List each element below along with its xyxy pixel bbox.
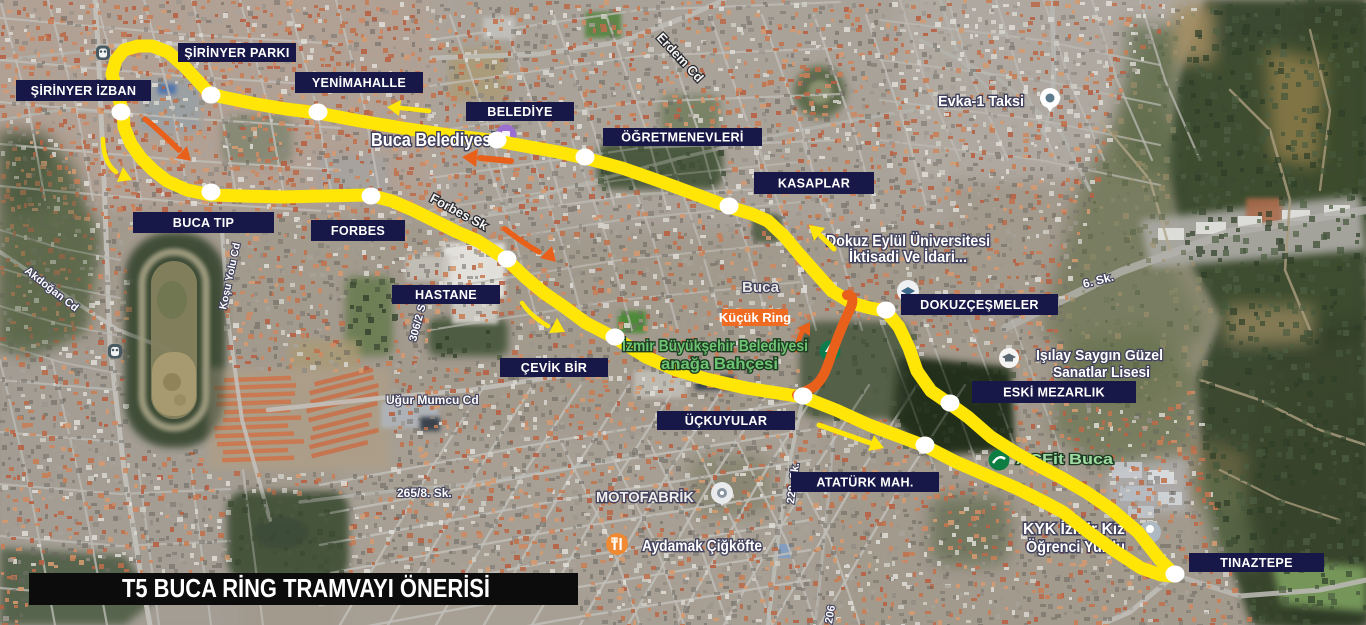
svg-text:FORBES: FORBES bbox=[331, 224, 385, 238]
svg-text:MOTOFABRİK: MOTOFABRİK bbox=[596, 489, 694, 506]
svg-text:TINAZTEPE: TINAZTEPE bbox=[1220, 556, 1293, 570]
svg-text:İzmir Büyükşehir Belediyesi: İzmir Büyükşehir Belediyesi bbox=[622, 337, 808, 355]
svg-text:Dokuz Eylül Üniversitesi: Dokuz Eylül Üniversitesi bbox=[826, 233, 990, 250]
svg-text:DOKUZÇEŞMELER: DOKUZÇEŞMELER bbox=[920, 298, 1039, 312]
svg-text:Işılay Saygın Güzel: Işılay Saygın Güzel bbox=[1036, 348, 1163, 364]
svg-text:Uğur Mumcu Cd: Uğur Mumcu Cd bbox=[386, 393, 479, 407]
svg-text:ŞİRİNYER İZBAN: ŞİRİNYER İZBAN bbox=[31, 83, 137, 98]
svg-text:ESKİ MEZARLIK: ESKİ MEZARLIK bbox=[1003, 384, 1105, 399]
svg-text:Sanatlar Lisesi: Sanatlar Lisesi bbox=[1053, 365, 1150, 381]
svg-text:Buca: Buca bbox=[742, 279, 780, 296]
svg-text:BUCA TIP: BUCA TIP bbox=[173, 216, 234, 230]
svg-text:Aydamak Çiğköfte: Aydamak Çiğköfte bbox=[642, 538, 762, 555]
svg-text:KASAPLAR: KASAPLAR bbox=[778, 176, 850, 190]
svg-text:Küçük Ring: Küçük Ring bbox=[719, 310, 791, 325]
svg-text:265/8. Sk.: 265/8. Sk. bbox=[397, 486, 452, 500]
svg-text:Buca Belediyesi: Buca Belediyesi bbox=[371, 130, 496, 150]
svg-text:ATATÜRK MAH.: ATATÜRK MAH. bbox=[816, 474, 913, 489]
svg-text:Evka-1 Taksi: Evka-1 Taksi bbox=[938, 93, 1024, 110]
svg-text:BELEDİYE: BELEDİYE bbox=[487, 104, 552, 119]
svg-text:ÜÇKUYULAR: ÜÇKUYULAR bbox=[685, 413, 767, 428]
svg-text:anağa Bahçesi: anağa Bahçesi bbox=[661, 356, 778, 373]
svg-text:HASTANE: HASTANE bbox=[415, 288, 477, 302]
svg-text:T5 BUCA RİNG TRAMVAYI ÖNERİSİ: T5 BUCA RİNG TRAMVAYI ÖNERİSİ bbox=[122, 573, 490, 603]
svg-text:ŞİRİNYER PARKI: ŞİRİNYER PARKI bbox=[184, 45, 289, 60]
svg-text:ÇEVİK BİR: ÇEVİK BİR bbox=[521, 360, 587, 375]
svg-text:ÖĞRETMENEVLERİ: ÖĞRETMENEVLERİ bbox=[621, 129, 743, 144]
svg-text:İktisadi Ve İdari...: İktisadi Ve İdari... bbox=[849, 249, 967, 266]
svg-text:YENİMAHALLE: YENİMAHALLE bbox=[312, 75, 406, 90]
